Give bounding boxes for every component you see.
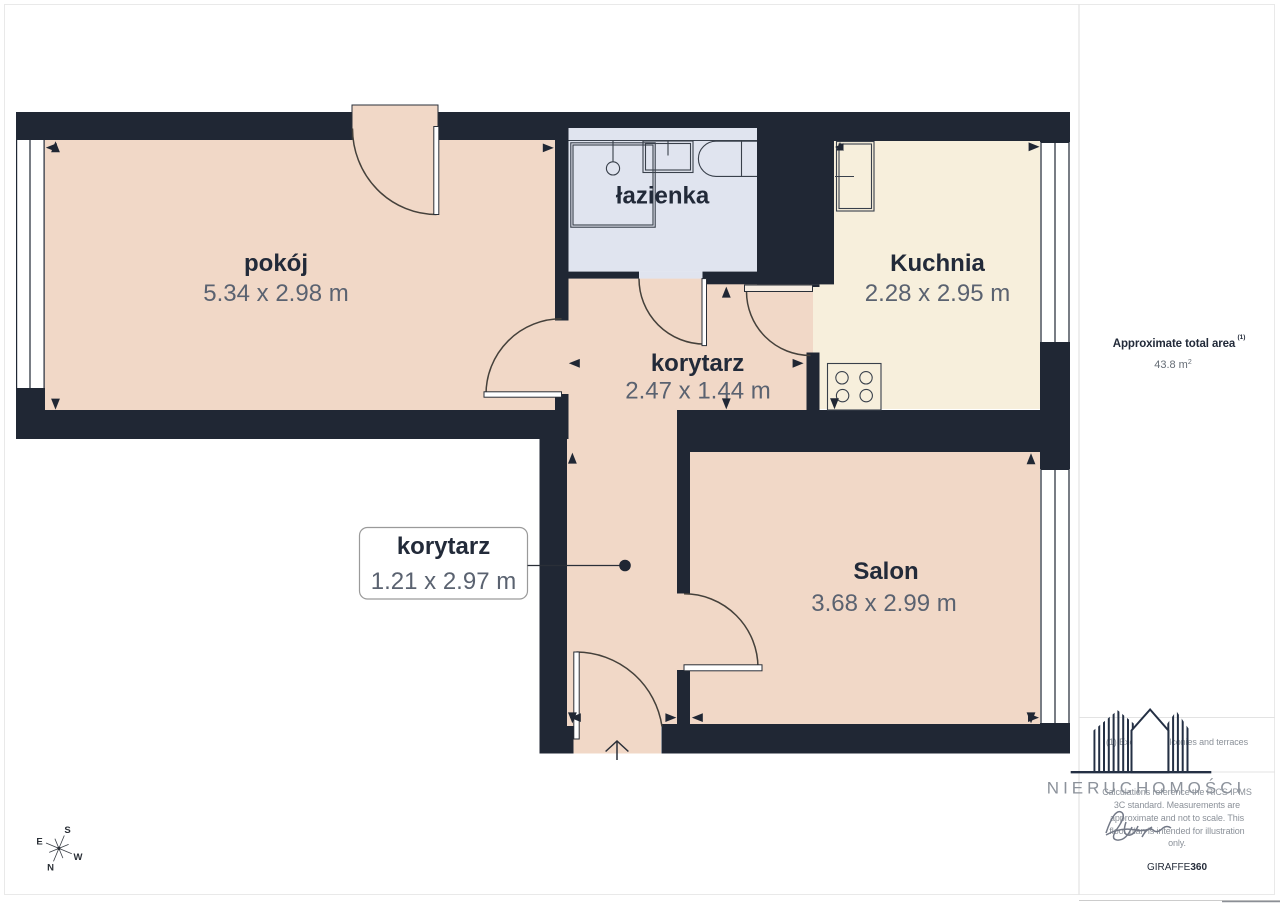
svg-text:E: E	[36, 837, 42, 848]
svg-text:korytarz: korytarz	[397, 533, 490, 560]
svg-text:3.68 x 2.99 m: 3.68 x 2.99 m	[811, 590, 956, 617]
svg-text:3C standard. Measurements are: 3C standard. Measurements are	[1114, 800, 1240, 810]
svg-text:pokój: pokój	[244, 250, 308, 277]
svg-text:Salon: Salon	[853, 558, 918, 585]
svg-text:5.34 x 2.98 m: 5.34 x 2.98 m	[203, 280, 348, 307]
svg-text:43.8 m2: 43.8 m2	[1154, 359, 1192, 371]
svg-text:Kuchnia: Kuchnia	[890, 250, 985, 277]
svg-text:GIRAFFE360: GIRAFFE360	[1147, 862, 1207, 873]
svg-text:2.47 x 1.44 m: 2.47 x 1.44 m	[625, 378, 770, 405]
svg-text:2.28 x 2.95 m: 2.28 x 2.95 m	[865, 280, 1010, 307]
svg-text:N: N	[47, 863, 54, 874]
svg-text:Approximate total area: Approximate total area	[1113, 338, 1236, 350]
svg-text:NIERUCHOMOŚCI: NIERUCHOMOŚCI	[1047, 779, 1245, 798]
svg-text:W: W	[74, 852, 83, 863]
svg-text:1.21 x 2.97 m: 1.21 x 2.97 m	[371, 568, 516, 595]
svg-text:approximate and not to scale.: approximate and not to scale. This	[1110, 813, 1245, 823]
svg-text:korytarz: korytarz	[651, 350, 744, 377]
svg-text:łazienka: łazienka	[616, 183, 710, 210]
svg-text:(1): (1)	[1238, 334, 1246, 341]
svg-text:only.: only.	[1168, 838, 1186, 848]
svg-text:S: S	[64, 825, 70, 836]
